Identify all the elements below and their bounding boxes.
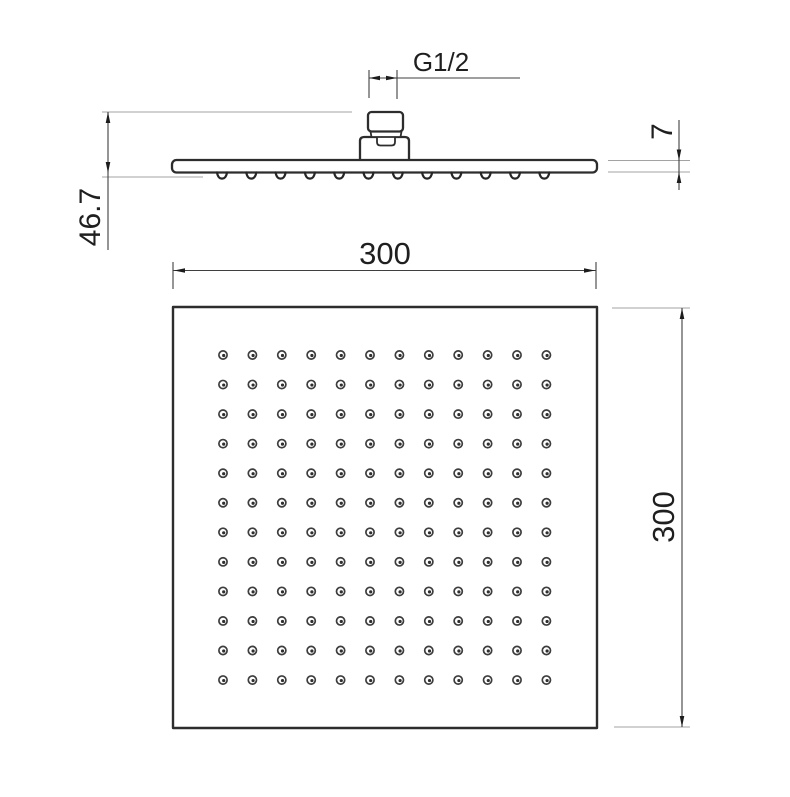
nozzle-dot-core (369, 383, 372, 386)
nozzle-dot-core (310, 443, 313, 446)
nozzle-dot-core (340, 679, 343, 682)
nozzle-dot-core (487, 531, 490, 534)
nozzle-dot-core (222, 502, 225, 505)
nozzle-dot-core (457, 413, 460, 416)
nozzle-dot-core (310, 531, 313, 534)
nozzle-dot-core (252, 502, 255, 505)
nozzle-dot-core (546, 531, 549, 534)
nozzle-dot-core (428, 502, 431, 505)
nozzle-dot-core (487, 679, 490, 682)
nozzle-dot-core (546, 590, 549, 593)
nozzle-dot-core (281, 531, 284, 534)
arrow-up-icon (677, 172, 682, 183)
nozzle-dot-core (369, 354, 372, 357)
thread-label: G1/2 (413, 47, 469, 77)
nozzle-dot-core (546, 649, 549, 652)
nozzle-dot-core (281, 413, 284, 416)
nozzle-dot-core (369, 531, 372, 534)
nozzle-dot-core (516, 620, 519, 623)
nozzle-dot-core (487, 649, 490, 652)
nozzle-dot-core (546, 443, 549, 446)
nozzle-dot-core (252, 383, 255, 386)
nozzle-dot-core (281, 679, 284, 682)
arrow-right-icon (584, 268, 595, 273)
nozzle-dot-core (546, 679, 549, 682)
nozzle-dot-core (457, 472, 460, 475)
nozzle-dot-core (310, 561, 313, 564)
nozzle-dot-core (399, 561, 402, 564)
nozzle-dot-core (340, 472, 343, 475)
nozzle-dot-core (222, 413, 225, 416)
front-view (173, 307, 597, 728)
nozzle-dot-core (546, 383, 549, 386)
arrow-up-icon (106, 112, 111, 123)
nozzle-dot-core (369, 561, 372, 564)
nozzle-dot-core (369, 679, 372, 682)
nozzle-dot-core (252, 620, 255, 623)
nozzle-dot-core (281, 443, 284, 446)
nozzle-dot-core (428, 649, 431, 652)
nozzle-dot-core (340, 531, 343, 534)
nozzle-dot-core (516, 354, 519, 357)
nozzle-dot-core (487, 561, 490, 564)
nozzle-dot-core (546, 620, 549, 623)
nozzle-dot-core (310, 620, 313, 623)
nozzle-dot-core (340, 502, 343, 505)
plate-thickness-label: 7 (646, 123, 679, 140)
nozzle-dot-core (222, 383, 225, 386)
nozzle-dot-core (487, 443, 490, 446)
nozzle-dot-core (310, 502, 313, 505)
nozzle-dot-core (340, 383, 343, 386)
nozzle-dot-core (369, 620, 372, 623)
nozzle-dot-core (222, 561, 225, 564)
nozzle-dot-core (252, 531, 255, 534)
nozzle-dot-core (281, 620, 284, 623)
nozzle-dot-core (281, 561, 284, 564)
nozzle-dot-core (428, 472, 431, 475)
nozzle-dot-core (340, 443, 343, 446)
nozzle-dot-core (310, 383, 313, 386)
arrow-left-icon (174, 268, 185, 273)
nozzle-dot-core (428, 561, 431, 564)
nozzle-dot-core (222, 354, 225, 357)
nozzle-dot-core (399, 472, 402, 475)
nozzle-dot-core (487, 502, 490, 505)
dimension-plate-thickness: 7 (608, 120, 690, 190)
nozzle-dot-core (340, 354, 343, 357)
nozzle-dot-core (457, 649, 460, 652)
nozzle-dot-core (399, 354, 402, 357)
connector-knob (368, 112, 403, 132)
nozzle-dot-core (281, 649, 284, 652)
nozzle-dot-core (310, 649, 313, 652)
nozzle-dot-core (428, 679, 431, 682)
nozzle-dot-core (310, 354, 313, 357)
technical-drawing-page: G1/2 46.7 7 300 (0, 0, 790, 797)
nozzle-dot-core (516, 561, 519, 564)
nozzle-dot-core (399, 620, 402, 623)
nozzle-dot-core (369, 590, 372, 593)
nozzle-dot-core (399, 590, 402, 593)
nozzle-dot-core (546, 561, 549, 564)
dimension-face-height: 300 (612, 308, 690, 727)
connector-notch (377, 137, 395, 146)
nozzle-dot-core (281, 383, 284, 386)
nozzle-dot-core (222, 620, 225, 623)
arrow-down-icon (677, 150, 682, 161)
nozzle-dot-core (399, 502, 402, 505)
nozzle-dot-core (222, 590, 225, 593)
dimension-total-height: 46.7 (74, 112, 352, 250)
nozzle-dot-core (252, 443, 255, 446)
nozzle-dot-core (487, 472, 490, 475)
nozzle-dot-core (516, 502, 519, 505)
nozzle-dot-core (340, 620, 343, 623)
nozzle-dot-core (487, 354, 490, 357)
nozzle-dot-core (310, 413, 313, 416)
nozzle-dot-core (252, 561, 255, 564)
nozzle-dot-core (516, 649, 519, 652)
nozzle-dot-core (222, 472, 225, 475)
arrow-down-icon (680, 716, 685, 727)
nozzle-dot-core (457, 679, 460, 682)
nozzle-dot-core (252, 679, 255, 682)
dimension-face-width: 300 (173, 236, 596, 289)
total-height-label: 46.7 (74, 188, 107, 246)
nozzle-dot-core (457, 354, 460, 357)
nozzle-dot-core (487, 413, 490, 416)
nozzle-dot-core (457, 590, 460, 593)
nozzle-dot-core (516, 679, 519, 682)
nozzle-dot-core (369, 413, 372, 416)
dimension-thread: G1/2 (369, 47, 520, 99)
nozzle-dot-core (516, 531, 519, 534)
nozzle-dot-core (252, 590, 255, 593)
nozzle-dot-core (252, 354, 255, 357)
nozzle-dot-core (252, 472, 255, 475)
nozzle-dot-core (281, 354, 284, 357)
arrow-left-icon (369, 76, 380, 81)
nozzle-dot-core (428, 620, 431, 623)
nozzle-dot-core (340, 590, 343, 593)
nozzle-dot-core (516, 383, 519, 386)
nozzle-dot-core (369, 649, 372, 652)
nozzle-dot-core (457, 502, 460, 505)
nozzle-dot-core (516, 472, 519, 475)
nozzle-dot-core (222, 649, 225, 652)
nozzle-dot-core (546, 413, 549, 416)
nozzle-dot-core (487, 620, 490, 623)
nozzle-dot-core (428, 443, 431, 446)
nozzle-dot-core (310, 679, 313, 682)
nozzle-dot-core (281, 472, 284, 475)
side-view (172, 112, 597, 179)
nozzle-dot-core (516, 443, 519, 446)
nozzle-dot-core (399, 383, 402, 386)
nozzle-dot-core (428, 354, 431, 357)
nozzle-dot-core (457, 383, 460, 386)
nozzle-dot-core (369, 502, 372, 505)
nozzle-dot-core (457, 531, 460, 534)
nozzle-dot-core (281, 502, 284, 505)
shower-head-drawing: G1/2 46.7 7 300 (0, 0, 790, 797)
arrow-right-icon (386, 76, 397, 81)
nozzle-dot-core (516, 413, 519, 416)
nozzle-dot-core (340, 561, 343, 564)
arrow-down-icon (106, 162, 111, 173)
nozzle-dot-core (252, 649, 255, 652)
nozzle-dot-core (281, 590, 284, 593)
arrow-up-icon (680, 308, 685, 319)
nozzle-dot-core (457, 561, 460, 564)
nozzle-dot-core (222, 443, 225, 446)
nozzle-dot-core (222, 679, 225, 682)
nozzle-dot-core (457, 443, 460, 446)
nozzle-dot-core (457, 620, 460, 623)
nozzle-dot-core (428, 383, 431, 386)
nozzle-dot-core (252, 413, 255, 416)
nozzle-dot-core (399, 531, 402, 534)
nozzle-dot-core (310, 472, 313, 475)
nozzle-dot-core (222, 531, 225, 534)
nozzle-dot-core (487, 383, 490, 386)
nozzle-dot-core (428, 531, 431, 534)
nozzle-dot-core (399, 413, 402, 416)
shower-face-outline (173, 307, 597, 728)
nozzle-dot-core (546, 502, 549, 505)
nozzle-dot-core (516, 590, 519, 593)
nozzle-dot-core (399, 679, 402, 682)
nozzle-dot-core (546, 472, 549, 475)
nozzle-dot-core (310, 590, 313, 593)
nozzle-dot-core (399, 649, 402, 652)
nozzle-dot-core (428, 413, 431, 416)
nozzle-dot-core (369, 472, 372, 475)
face-width-label: 300 (359, 236, 411, 271)
nozzle-dot-core (428, 590, 431, 593)
nozzle-dot-core (340, 413, 343, 416)
nozzle-dot-core (399, 443, 402, 446)
shower-plate-profile (172, 160, 597, 173)
nozzle-dot-core (546, 354, 549, 357)
face-height-label: 300 (646, 491, 681, 543)
nozzle-dot-core (340, 649, 343, 652)
nozzle-dot-core (369, 443, 372, 446)
nozzle-dot-core (487, 590, 490, 593)
